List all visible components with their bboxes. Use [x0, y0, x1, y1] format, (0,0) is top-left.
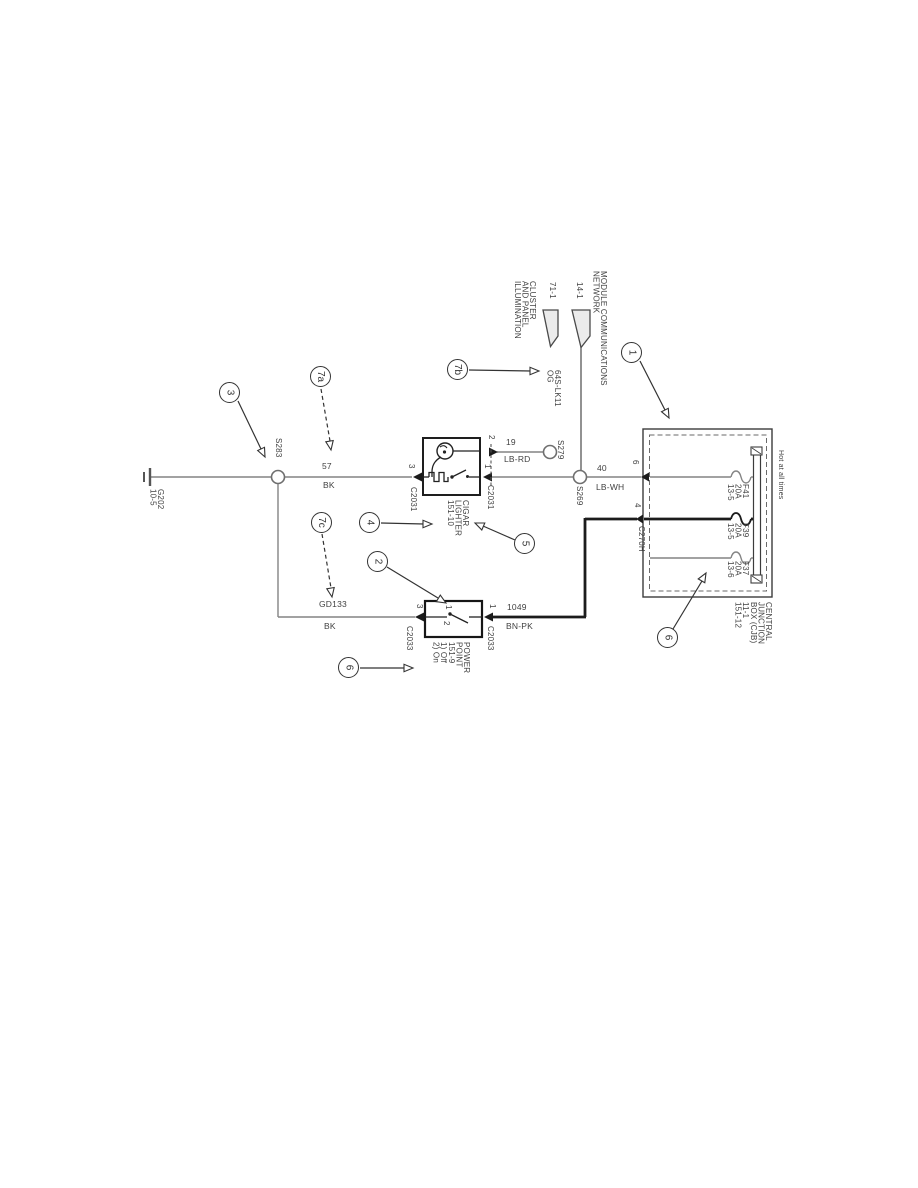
power-point-connector-left: C2033 — [405, 626, 413, 651]
wire-57-color-label: BK — [323, 480, 335, 490]
callout-balloon-7b: 7b — [447, 359, 468, 380]
fuse-f41-label: F41 20A 13-5 — [726, 484, 749, 501]
offpage-illumination-label: CLUSTER AND PANEL ILLUMINATION — [513, 281, 536, 339]
cigar-lighter-label: CIGAR LIGHTER 151-10 — [446, 500, 469, 536]
offpage-illumination-page: 71-1 — [548, 282, 556, 299]
callout-balloon-5: 5 — [514, 533, 535, 554]
splice-s279-label: S279 — [556, 440, 564, 459]
power-point-position-1: 1 — [444, 605, 452, 610]
cigar-lighter-element — [423, 443, 480, 482]
cigar-lighter-pin1: 1 — [483, 464, 491, 469]
wire-gd133-bk — [278, 484, 415, 617]
cjb-pin4: 4 — [633, 503, 641, 508]
power-point-connector-right: C2033 — [486, 626, 494, 651]
wire-1049-circuit-label: 1049 — [507, 602, 527, 612]
cjb-bus-bar — [751, 447, 762, 583]
wiring-diagram-page: 71-1 CLUSTER AND PANEL ILLUMINATION 14-1… — [0, 0, 918, 1188]
callout-balloon-4-text: 4 — [364, 520, 375, 526]
splice-s269-circle — [574, 471, 587, 484]
fuse-f37-label: F37 20A 13-6 — [726, 561, 749, 578]
callout-balloon-1: 1 — [621, 342, 642, 363]
power-point-label: POWER POINT 151-9 1) Off 2) On — [432, 642, 470, 673]
wire-40-color-label: LB-WH — [596, 482, 624, 492]
callout-balloon-5-text: 5 — [519, 541, 530, 547]
splice-s279-circle — [544, 446, 557, 459]
power-point-pin1: 1 — [488, 604, 496, 609]
offpage-network-label: MODULE COMMUNICATIONS NETWORK — [592, 271, 607, 386]
splice-s283-label: S283 — [274, 438, 282, 457]
callout-balloon-1-text: 1 — [626, 350, 637, 356]
callout-balloon-7c: 7c — [311, 512, 332, 533]
callout-balloon-3: 3 — [219, 382, 240, 403]
ground-symbol-g202 — [144, 468, 150, 486]
cigar-lighter-connector-right: C2031 — [486, 485, 494, 510]
wire-1049-bn-pk — [493, 513, 754, 617]
power-point-switch — [425, 612, 482, 623]
cigar-lighter-pin2: 2 — [487, 435, 495, 440]
callout-balloon-2: 2 — [367, 551, 388, 572]
callout-balloon-7a-text: 7a — [315, 371, 326, 382]
power-point-box — [425, 601, 482, 637]
callout-balloon-6-cjb: 6 — [657, 627, 678, 648]
callout-balloon-6cjb-text: 6 — [662, 635, 673, 641]
wire-gd133-color-label: BK — [324, 621, 336, 631]
offpage-network-symbol — [572, 310, 590, 348]
wire-19-circuit-label: 19 — [506, 437, 516, 447]
wire-64s-lk11-label: 64S-LK11 OG — [546, 370, 561, 407]
callout-balloon-7c-text: 7c — [316, 517, 327, 528]
cigar-lighter-pin3: 3 — [407, 464, 415, 469]
callout-balloon-4: 4 — [359, 512, 380, 533]
callout-balloon-3-text: 3 — [224, 390, 235, 396]
callout-balloon-2-text: 2 — [372, 559, 383, 565]
wire-19-color-label: LB-RD — [504, 454, 531, 464]
wire-1049-color-label: BN-PK — [506, 621, 533, 631]
callout-balloon-7b-text: 7b — [452, 364, 463, 375]
offpage-network-page: 14-1 — [575, 282, 583, 299]
balloon-leaders — [238, 361, 702, 668]
fuse-f39-label: F39 20A 13-5 — [726, 523, 749, 540]
cjb-hot-at-all-times-label: Hot at all times — [777, 450, 784, 500]
wire-40-circuit-label: 40 — [597, 463, 607, 473]
power-point-position-2: 2 — [442, 621, 450, 626]
ground-g202-label: G202 10-5 — [149, 489, 164, 509]
splice-s269-label: S269 — [575, 486, 583, 505]
callout-balloon-7a: 7a — [310, 366, 331, 387]
cigar-lighter-connector-left: C2031 — [409, 487, 417, 512]
cjb-pin6: 6 — [631, 460, 639, 465]
callout-balloon-6-power-point: 6 — [338, 657, 359, 678]
wire-gd133-circuit-label: GD133 — [319, 599, 347, 609]
callout-balloon-6pp-text: 6 — [343, 665, 354, 671]
cjb-connector-c270h: C270H — [637, 526, 645, 552]
cjb-name-label: CENTRAL JUNCTION BOX (CJB) 11-1 151-12 — [734, 602, 772, 644]
power-point-pin3: 3 — [415, 604, 423, 609]
offpage-illumination-symbol — [543, 310, 558, 347]
splice-s283-circle — [272, 471, 285, 484]
wire-57-circuit-label: 57 — [322, 461, 332, 471]
diagram-graphics — [0, 0, 918, 1188]
